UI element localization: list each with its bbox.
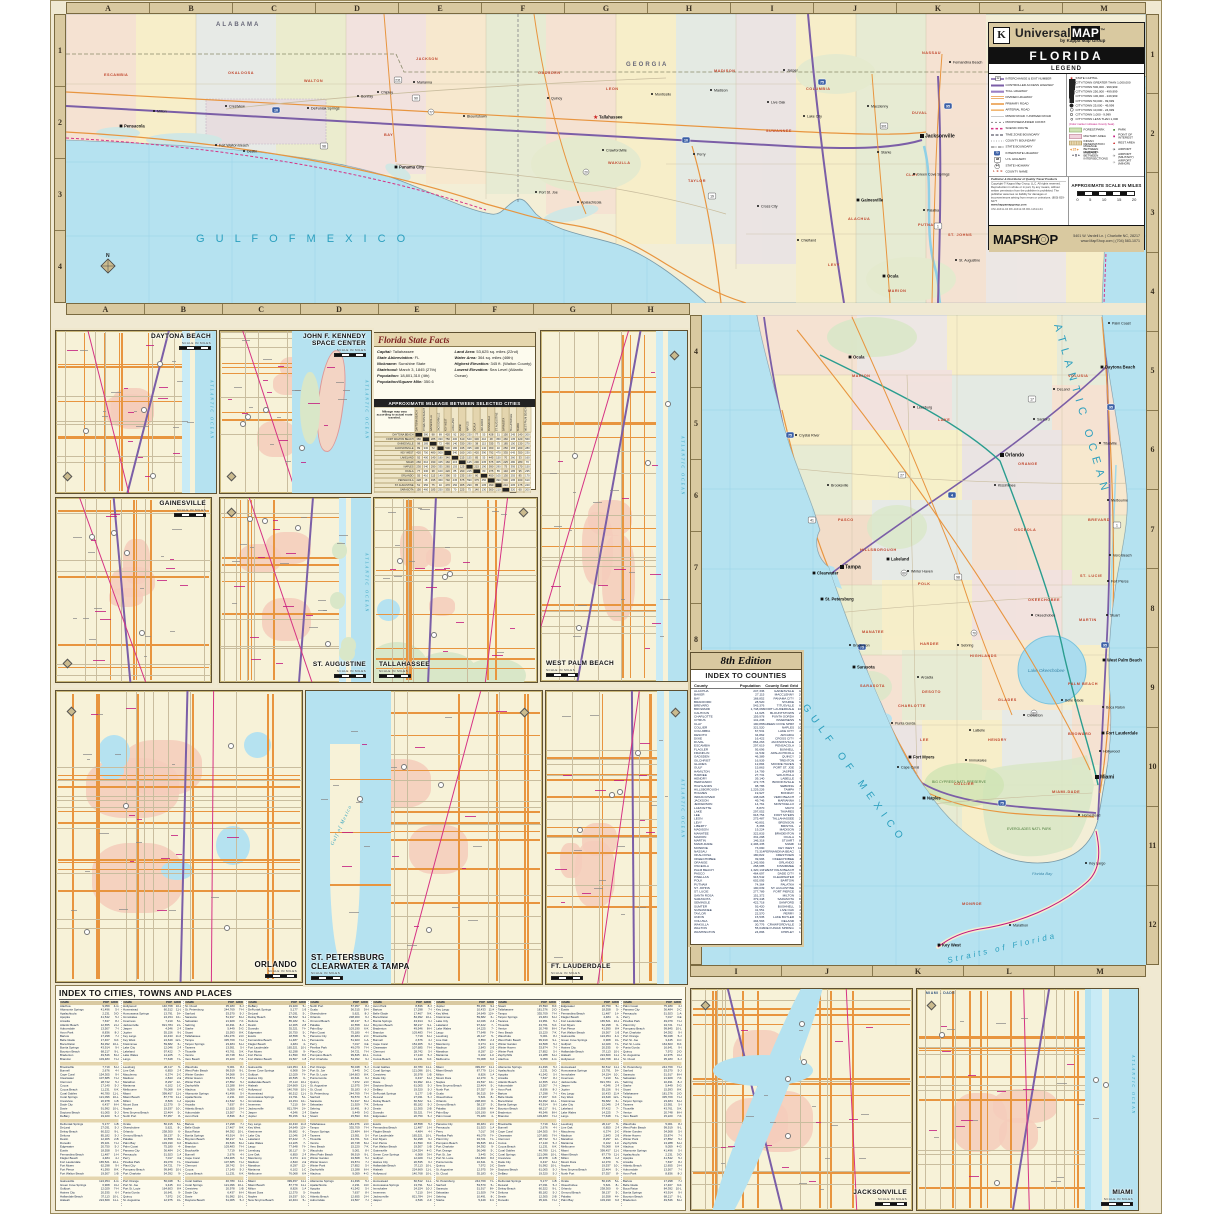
city-index-row: Fort Walton Beach19,5071-B bbox=[60, 1172, 119, 1176]
north-florida-map: ALABAMA GEORGIA G U L F O F M E X I C O … bbox=[66, 14, 1146, 303]
airmil-icon: ✈ bbox=[1112, 154, 1117, 158]
compass-icon bbox=[67, 707, 77, 717]
city-index-row: Melbourne76,0686-K bbox=[248, 1172, 307, 1176]
city-index-row: Jupiter55,1569-L bbox=[248, 1115, 307, 1119]
grid-label-K: K bbox=[873, 966, 964, 976]
highway-shield: 20 bbox=[584, 170, 588, 174]
city-index-row: Jasper4,5462-F bbox=[373, 1199, 432, 1203]
county-label: PALM BEACH bbox=[1068, 682, 1098, 686]
county-label: MARION bbox=[852, 374, 870, 378]
copyright-block: Publisher & Distributor of Quality Trave… bbox=[989, 177, 1069, 225]
city-index-row: Vero Beach15,2207-K bbox=[185, 1058, 244, 1062]
county-label: OSCEOLA bbox=[1014, 528, 1036, 532]
city-index-row: Palm Coast75,1804-I bbox=[436, 1115, 495, 1119]
grid-label-7: 7 bbox=[691, 532, 701, 604]
c7-symbol bbox=[1069, 108, 1074, 113]
highway-shield: 10 bbox=[684, 139, 688, 143]
city-label: Green Cove Springs bbox=[917, 173, 950, 177]
grid-label-C: C bbox=[223, 304, 301, 314]
svg-text:★: ★ bbox=[593, 114, 598, 121]
mileage-table-title: APPROXIMATE MILEAGE BETWEEN SELECTED CIT… bbox=[374, 399, 535, 407]
city-label: Marathon bbox=[1013, 924, 1028, 928]
label-everglades: EVERGLADES NAT'L PARK bbox=[1007, 827, 1052, 831]
inset-title: GAINESVILLESCALE IN MILES bbox=[159, 501, 206, 517]
military-symbol bbox=[1069, 135, 1082, 139]
ocean-label: ATLANTIC OCEAN bbox=[209, 380, 214, 440]
city-label: Brooksville bbox=[831, 484, 848, 488]
county-label: LEON bbox=[606, 87, 619, 91]
highway-shield: 17 bbox=[1030, 398, 1034, 402]
city-label: Leesburg bbox=[917, 406, 932, 410]
city-index-row: Vero Beach15,2207-K bbox=[623, 1115, 682, 1119]
city-index-row: Hialeah224,66911-L bbox=[60, 1199, 119, 1203]
city-label: Blountstown bbox=[467, 115, 487, 119]
highway-shield: 41 bbox=[810, 519, 814, 523]
city-label: Clewiston bbox=[1027, 714, 1043, 718]
florida-wall-map: ALABAMA GEORGIA G U L F O F M E X I C O … bbox=[0, 0, 1214, 1214]
highway-shield: 301 bbox=[881, 125, 887, 129]
grid-label-9: 9 bbox=[1147, 648, 1158, 727]
grid-label-H: H bbox=[648, 3, 731, 13]
city-label: Port St. Joe bbox=[539, 191, 558, 195]
county-label: MARION bbox=[888, 289, 906, 293]
county-label: MIAMI-DADE bbox=[1052, 790, 1080, 794]
grid-label-1: 1 bbox=[55, 15, 65, 87]
primary-symbol bbox=[991, 102, 1004, 106]
city-index-row: Bradenton49,5468-H bbox=[623, 1199, 682, 1203]
city-index-row: DeBary19,3205-J bbox=[498, 1172, 557, 1176]
inset-title: WEST PALM BEACHSCALE IN MILES bbox=[546, 661, 614, 677]
county-label: LEVY bbox=[828, 263, 840, 267]
city-label: Chipley bbox=[381, 91, 393, 95]
ocean-label: ATLANTIC OCEAN bbox=[681, 436, 686, 496]
county-label: TAYLOR bbox=[688, 179, 706, 183]
grid-label-K: K bbox=[897, 3, 980, 13]
city-label: Naples bbox=[927, 796, 941, 801]
county-label: VOLUSIA bbox=[1068, 374, 1088, 378]
inset-ftlaud: ATLANTIC OCEANFT. LAUDERDALESCALE IN MIL… bbox=[545, 690, 688, 985]
inset-wpb: ATLANTIC OCEANWEST PALM BEACHSCALE IN MI… bbox=[540, 330, 688, 682]
city-label: Bradenton bbox=[853, 644, 870, 648]
county-label: BROWARD bbox=[1068, 732, 1092, 736]
grid-label-1: 1 bbox=[1147, 15, 1158, 94]
ihwy-symbol: 75 bbox=[991, 151, 1004, 155]
ushwy-symbol: 98 bbox=[991, 158, 1004, 162]
city-label: Homestead bbox=[1082, 814, 1100, 818]
city-label: Crestview bbox=[229, 105, 245, 109]
city-index-row: Alachua9,0594-G bbox=[498, 1058, 557, 1062]
grid-label-H: H bbox=[612, 304, 689, 314]
county-label: ALACHUA bbox=[848, 217, 870, 221]
county-tag-label: MIAMI - DADE bbox=[926, 991, 955, 995]
indian-symbol bbox=[1069, 141, 1082, 145]
grid-letters-inner: ABCDEFGH bbox=[66, 303, 690, 315]
city-label: Jacksonville bbox=[925, 134, 955, 140]
grid-label-5: 5 bbox=[1147, 332, 1158, 411]
scale-title: APPROXIMATE SCALE IN MILES bbox=[1071, 183, 1142, 188]
legend-title: LEGEND bbox=[989, 64, 1144, 74]
city-index-row: Starke5,4493-G bbox=[436, 1199, 495, 1203]
county-index-panel: 8th Edition INDEX TO COUNTIES CountyPopu… bbox=[690, 652, 802, 945]
inset-miami: ATLANTIC OCEANMIAMI - DADEMIAMISCALE IN … bbox=[916, 988, 1139, 1211]
county-label: ST. JOHNS bbox=[948, 233, 972, 237]
city-index-row: Brandon103,4837-H bbox=[60, 1058, 119, 1062]
city-index-row: Cocoa Beach11,2316-K bbox=[185, 1172, 244, 1176]
highway-shield: 75 bbox=[820, 81, 824, 85]
city-label: Sebring bbox=[961, 644, 973, 648]
city-label: Kissimmee bbox=[998, 484, 1016, 488]
arterial-symbol bbox=[991, 108, 1004, 112]
city-label: Okeechobee bbox=[1035, 614, 1055, 618]
city-label: Madison bbox=[714, 89, 728, 93]
grid-label-A: A bbox=[67, 304, 145, 314]
county-label: SARASOTA bbox=[860, 684, 885, 688]
mmark-symbol: ◂ 15 ▸ bbox=[1069, 148, 1082, 152]
grid-letters-bottom: IJKLM bbox=[690, 965, 1146, 977]
grid-label-4: 4 bbox=[691, 316, 701, 388]
state-facts-title: Florida State Facts bbox=[374, 333, 535, 347]
minor-symbol bbox=[991, 114, 1004, 118]
title-legend-panel: K UniversalMAP™ by Kappa Map Group FLORI… bbox=[988, 22, 1145, 250]
grid-label-I: I bbox=[731, 3, 814, 13]
city-label: Perry bbox=[697, 153, 706, 157]
highway-shield: 95 bbox=[1109, 406, 1113, 410]
county-label: HIGHLANDS bbox=[970, 654, 997, 658]
highway-shield: 60 bbox=[902, 571, 906, 575]
county-label: ST. LUCIE bbox=[1080, 574, 1102, 578]
grid-label-J: J bbox=[814, 3, 897, 13]
scenic-symbol bbox=[991, 127, 1004, 131]
city-index-row: Edgewater20,7505-J bbox=[373, 1115, 432, 1119]
city-label: Arcadia bbox=[921, 676, 933, 680]
stateb-symbol bbox=[991, 145, 1004, 149]
inset-orlando: ORLANDOSCALE IN MILES bbox=[55, 690, 303, 983]
county-label: COLLIER bbox=[954, 782, 974, 786]
grid-label-4: 4 bbox=[1147, 253, 1158, 332]
park-icon: ■ bbox=[1112, 128, 1117, 132]
city-label: Lakeland bbox=[891, 557, 910, 562]
county-label: BREVARD bbox=[1088, 518, 1110, 522]
county-label: GADSDEN bbox=[538, 71, 561, 75]
city-index-row: Hollywood140,76810-L bbox=[373, 1172, 432, 1176]
city-label: Punta Gorda bbox=[895, 722, 915, 726]
county-label: ESCAMBIA bbox=[104, 73, 128, 77]
city-label: Pensacola bbox=[124, 124, 145, 129]
grid-label-B: B bbox=[145, 304, 223, 314]
grid-label-D: D bbox=[301, 304, 379, 314]
highway-shield: 98 bbox=[322, 145, 326, 149]
city-label: Titusville bbox=[1103, 442, 1117, 446]
highway-shield: 4 bbox=[951, 494, 953, 498]
grid-label-M: M bbox=[1063, 3, 1145, 13]
city-index-row: North Port57,3578-I bbox=[561, 1172, 620, 1176]
grid-numbers-left: 1234 bbox=[54, 14, 66, 303]
city-label: Ocala bbox=[887, 274, 899, 279]
fact-row: Population/Square Mile: 350.6 bbox=[377, 379, 455, 385]
label-lake-okeechobee: Lake Okeechobee bbox=[1028, 668, 1065, 673]
inset-title: ST. AUGUSTINESCALE IN MILES bbox=[313, 662, 366, 678]
edition-label: 8th Edition bbox=[691, 653, 801, 670]
grid-label-6: 6 bbox=[691, 460, 701, 532]
inset-title: TALLAHASSEESCALE IN MILES bbox=[379, 662, 430, 678]
city-label: Hollywood bbox=[1103, 750, 1120, 754]
city-label: Macclenny bbox=[871, 105, 888, 109]
city-label: Miami bbox=[1100, 775, 1115, 781]
svg-text:N: N bbox=[106, 253, 110, 259]
scale-bar bbox=[1077, 191, 1135, 196]
city-label: DeLand bbox=[1057, 388, 1070, 392]
city-label: Boca Raton bbox=[1106, 706, 1125, 710]
city-index-row: St. Augustine12,9753-H bbox=[123, 1199, 182, 1203]
county-label: WAKULLA bbox=[608, 161, 630, 165]
city-label: Fort Walton Beach bbox=[219, 144, 249, 148]
grid-label-2: 2 bbox=[1147, 94, 1158, 173]
highway-shield: 75 bbox=[788, 434, 792, 438]
city-label: Crystal River bbox=[799, 434, 820, 438]
city-label: Lake City bbox=[807, 115, 822, 119]
divided-symbol bbox=[991, 96, 1004, 100]
grid-label-E: E bbox=[399, 3, 482, 13]
mint-symbol: + 8 + bbox=[1069, 154, 1082, 158]
city-label: Live Oak bbox=[771, 101, 785, 105]
city-label: Stuart bbox=[1110, 614, 1120, 618]
city-index-row: Avon Park8,8368-J bbox=[623, 1172, 682, 1176]
city-label: Sanford bbox=[1037, 418, 1050, 422]
city-label: Apalachicola bbox=[581, 201, 601, 205]
city-label: Gainesville bbox=[861, 198, 884, 203]
grid-label-L: L bbox=[964, 966, 1055, 976]
city-label: Panama City bbox=[399, 165, 425, 170]
city-index-row: Port Charlotte54,3929-I bbox=[310, 1058, 369, 1062]
grid-label-11: 11 bbox=[1147, 807, 1158, 886]
county-label: BAY bbox=[384, 133, 393, 137]
city-label: Ocala bbox=[853, 355, 865, 360]
city-label: Fernandina Beach bbox=[953, 61, 982, 65]
county-label: NASSAU bbox=[922, 51, 941, 55]
sthwy-symbol: 44 bbox=[991, 164, 1004, 168]
mapshop-footer: MAPSHP 5401 W. Vardell Ln. | Charlotte N… bbox=[989, 225, 1144, 252]
city-label: Immokalee bbox=[969, 759, 987, 763]
county-label: JACKSON bbox=[416, 57, 438, 61]
city-index-row: Brandon103,4837-H bbox=[498, 1115, 557, 1119]
rest-icon: ▲ bbox=[1112, 141, 1117, 145]
forest-symbol bbox=[1069, 128, 1082, 132]
city-label: Palatka bbox=[927, 209, 939, 213]
highway-shield: 231 bbox=[395, 79, 401, 83]
inset-title: JOHN F. KENNEDYSPACE CENTERSCALE IN MILE… bbox=[303, 334, 366, 357]
city-label: Fort Lauderdale bbox=[1106, 731, 1138, 736]
inset-tallahassee: TALLAHASSEESCALE IN MILES bbox=[373, 497, 538, 683]
city-index-row: Auburndale13,5077-I bbox=[310, 1199, 369, 1203]
city-index-title: INDEX TO CITIES, TOWNS AND PLACES bbox=[59, 988, 682, 1000]
county-label: DESOTO bbox=[922, 690, 941, 694]
county-label: WALTON bbox=[304, 79, 323, 83]
city-label: Key West bbox=[942, 943, 961, 948]
city-label: Clearwater bbox=[817, 571, 839, 576]
interchange-symbol: 22 bbox=[991, 77, 1004, 81]
c9-symbol bbox=[1069, 118, 1074, 122]
city-index-row: Daytona Beach61,0055-J bbox=[185, 1199, 244, 1203]
grid-label-C: C bbox=[233, 3, 316, 13]
city-index-row: Hollywood140,76810-L bbox=[561, 1058, 620, 1062]
countyb-symbol bbox=[991, 139, 1004, 143]
grid-label-B: B bbox=[150, 3, 233, 13]
city-label: Daytona Beach bbox=[1105, 365, 1136, 370]
county-seat-note: (Color marker indicates County Seat) bbox=[1069, 123, 1142, 126]
airmin-icon: ✈ bbox=[1112, 161, 1117, 165]
scale-block: APPROXIMATE SCALE IN MILES 05101520 bbox=[1069, 177, 1144, 225]
city-index-row: DeBary19,3205-J bbox=[60, 1115, 119, 1119]
county-label: HENDRY bbox=[988, 738, 1007, 742]
grid-label-8: 8 bbox=[1147, 569, 1158, 648]
city-index-row: Cocoa Beach11,2316-K bbox=[373, 1058, 432, 1062]
legend-item: L E ECOUNTY NAME bbox=[991, 169, 1064, 175]
city-label: Melbourne bbox=[1111, 499, 1128, 503]
label-gulf-of-mexico-top: G U L F O F M E X I C O bbox=[196, 233, 409, 245]
city-index-row: New Smyrna Beach22,4645-J bbox=[248, 1199, 307, 1203]
inset-title: FT. LAUDERDALESCALE IN MILES bbox=[551, 964, 611, 980]
city-label: St. Augustine bbox=[959, 259, 980, 263]
ocean-label: ATLANTIC OCEAN bbox=[365, 553, 370, 613]
inset-title: ST. PETERSBURGCLEARWATER & TAMPASCALE IN… bbox=[311, 954, 410, 980]
county-label: PASCO bbox=[838, 518, 854, 522]
city-label: Cross City bbox=[761, 205, 778, 209]
grid-label-G: G bbox=[565, 3, 648, 13]
county-label: OKEECHOBEE bbox=[1028, 598, 1060, 602]
highway-shield: 1 bbox=[937, 225, 939, 229]
highway-shield: 19 bbox=[710, 195, 714, 199]
city-label: DeFuniak Springs bbox=[311, 107, 340, 111]
city-index-row: Alachua9,0594-G bbox=[310, 1172, 369, 1176]
highway-shield: 10 bbox=[274, 109, 278, 113]
city-label: Starke bbox=[881, 151, 891, 155]
city-index-row: Avon Park8,8368-J bbox=[185, 1115, 244, 1119]
grid-label-3: 3 bbox=[55, 159, 65, 231]
city-index-panel: INDEX TO CITIES, TOWNS AND PLACES NAMEPO… bbox=[55, 985, 686, 1211]
city-label: Fort Pierce bbox=[1111, 580, 1129, 584]
inset-gainesville: GAINESVILLESCALE IN MILES bbox=[55, 497, 212, 683]
legend-item: CITY/TOWN LESS THAN 1,000 bbox=[1069, 117, 1142, 122]
inset-staug: ATLANTIC OCEANST. AUGUSTINESCALE IN MILE… bbox=[219, 497, 372, 683]
city-label: Sarasota bbox=[857, 665, 875, 670]
county-label: SUWANNEE bbox=[766, 129, 792, 133]
brand-header: K UniversalMAP™ by Kappa Map Group bbox=[989, 23, 1144, 48]
compass-icon bbox=[226, 472, 236, 482]
city-label: Jasper bbox=[787, 69, 799, 73]
city-label: Marianna bbox=[417, 81, 432, 85]
county-label: HARDEE bbox=[920, 642, 939, 646]
county-label: LAKE bbox=[938, 418, 950, 422]
cname-symbol: L E E bbox=[991, 170, 1004, 174]
city-index-row: Stuart15,5938-K bbox=[310, 1115, 369, 1119]
city-label: Key Largo bbox=[1089, 862, 1105, 866]
inset-kennedy: ATLANTIC OCEANJOHN F. KENNEDYSPACE CENTE… bbox=[219, 330, 372, 494]
county-label: HILLSBOROUGH bbox=[860, 548, 897, 552]
highway-shield: 75 bbox=[1000, 802, 1004, 806]
grid-label-2: 2 bbox=[55, 87, 65, 159]
highway-shield: 77 bbox=[429, 110, 433, 114]
mapshop-contact: www.MapShop.com | (704) 583-1071 bbox=[1073, 239, 1140, 244]
grid-label-I: I bbox=[691, 966, 782, 976]
city-label: Monticello bbox=[655, 93, 671, 97]
state-facts-panel: Florida State Facts Capital: Tallahassee… bbox=[373, 332, 536, 490]
county-label: ORANGE bbox=[1018, 462, 1038, 466]
grid-label-A: A bbox=[67, 3, 150, 13]
grid-label-E: E bbox=[379, 304, 457, 314]
city-label: Belle Glade bbox=[1065, 699, 1084, 703]
label-alabama: ALABAMA bbox=[216, 22, 260, 28]
city-index-row: Port Charlotte54,3929-I bbox=[123, 1172, 182, 1176]
mapshop-logo: MAPSHP bbox=[993, 232, 1058, 247]
inset-jax: JACKSONVILLESCALE IN MILES bbox=[690, 988, 913, 1211]
city-label: Chiefland bbox=[801, 239, 816, 243]
city-label: Quincy bbox=[551, 97, 562, 101]
highway-shield: 98 bbox=[956, 576, 960, 580]
compass-icon bbox=[927, 1001, 937, 1011]
city-label: Vero Beach bbox=[1113, 554, 1132, 558]
grid-label-12: 12 bbox=[1147, 886, 1158, 964]
city-index-row: St. Cloud35,1836-J bbox=[623, 1058, 682, 1062]
city-index-row: North Port57,3578-I bbox=[123, 1115, 182, 1119]
grid-label-J: J bbox=[782, 966, 873, 976]
city-index-row: Fort Walton Beach19,5071-B bbox=[248, 1058, 307, 1062]
city-index-row: Largo77,6487-H bbox=[561, 1115, 620, 1119]
inset-title: JACKSONVILLESCALE IN MILES bbox=[853, 1190, 907, 1206]
county-label: MONROE bbox=[962, 902, 982, 906]
map-title: FLORIDA bbox=[989, 48, 1144, 64]
grid-label-5: 5 bbox=[691, 388, 701, 460]
city-index-row: Melbourne76,0686-K bbox=[436, 1058, 495, 1062]
timezone-symbol bbox=[991, 133, 1004, 137]
city-index-row: St. Cloud35,1836-J bbox=[436, 1172, 495, 1176]
city-label: Winter Haven bbox=[911, 570, 933, 574]
fact-row: Lowest Elevation: Sea Level (Atlantic Oc… bbox=[455, 367, 533, 379]
county-label: GLADES bbox=[998, 698, 1017, 702]
county-index-title: INDEX TO COUNTIES bbox=[691, 670, 801, 682]
controlled-symbol bbox=[991, 83, 1004, 87]
label-florida-bay: Florida Bay bbox=[1032, 871, 1053, 876]
city-label: Cape Coral bbox=[901, 766, 919, 770]
city-index-row: Dunedin35,3217-H bbox=[498, 1199, 557, 1203]
county-label: MADISON bbox=[714, 69, 735, 73]
county-label: OKALOOSA bbox=[228, 71, 254, 75]
highway-shield: 70 bbox=[972, 631, 976, 635]
city-index-row: Palm Bay103,1906-K bbox=[561, 1199, 620, 1203]
highway-shield: 27 bbox=[900, 474, 904, 478]
inset-title: MIAMISCALE IN MILES bbox=[1101, 1190, 1133, 1206]
county-label: POLK bbox=[918, 582, 931, 586]
city-label: Milton bbox=[157, 110, 167, 114]
city-label: Orlando bbox=[1005, 453, 1024, 459]
city-label: Fort Myers bbox=[913, 755, 935, 760]
city-label: Destin bbox=[247, 150, 257, 154]
city-label: Palm Coast bbox=[1112, 322, 1131, 326]
city-label: West Palm Beach bbox=[1107, 658, 1142, 663]
highway-shield: 1 bbox=[1116, 524, 1118, 528]
highway-shield: 95 bbox=[946, 105, 950, 109]
inset-title: ORLANDOSCALE IN MILES bbox=[254, 961, 297, 978]
c8-symbol bbox=[1069, 113, 1074, 117]
city-label: St. Petersburg bbox=[825, 597, 854, 602]
grid-label-D: D bbox=[316, 3, 399, 13]
grid-label-G: G bbox=[534, 304, 612, 314]
label-georgia: GEORGIA bbox=[626, 62, 668, 68]
county-label: COLUMBIA bbox=[806, 87, 830, 91]
city-index-row: Largo77,6487-H bbox=[123, 1058, 182, 1062]
grid-label-F: F bbox=[456, 304, 534, 314]
brand-name: UniversalMAP™ by Kappa Map Group bbox=[1015, 27, 1105, 44]
ocean-label: ATLANTIC OCEAN bbox=[365, 380, 370, 440]
